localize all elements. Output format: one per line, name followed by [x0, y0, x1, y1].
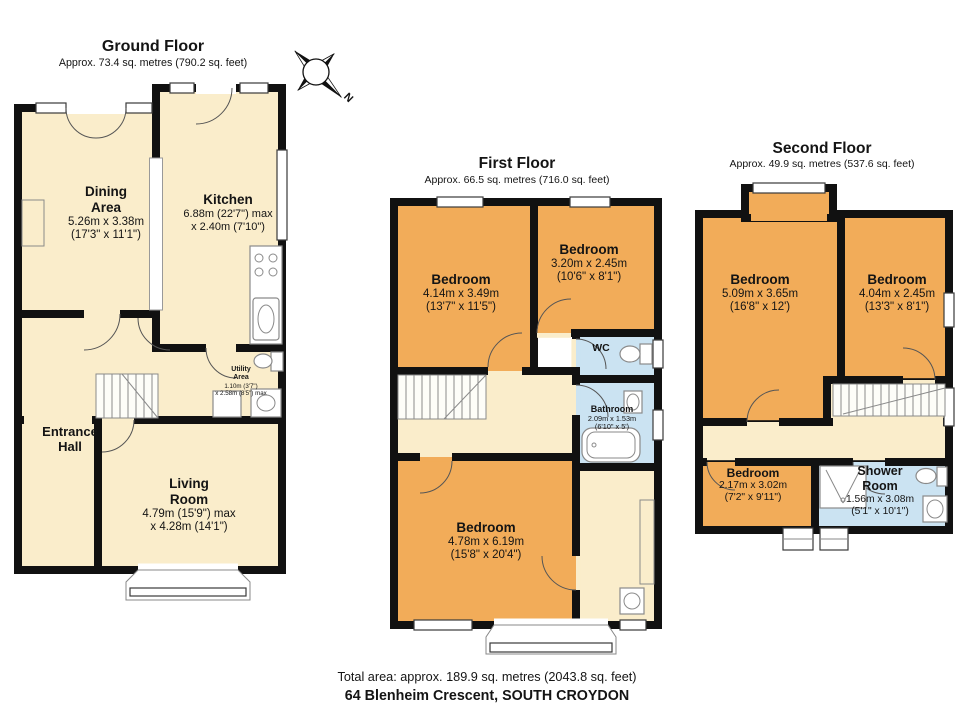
window — [126, 103, 152, 113]
ground-floor-title: Ground Floor — [102, 38, 204, 57]
stairs — [398, 375, 486, 419]
room-label-bedroom-right: Bedroom 4.04m x 2.45m (13'3" x 8'1") — [859, 272, 935, 315]
room-label-bedroom-small-first: Bedroom 3.20m x 2.45m (10'6" x 8'1") — [551, 242, 627, 285]
bay-window — [486, 625, 616, 654]
toilet-icon — [620, 344, 652, 364]
sink-icon — [923, 496, 947, 522]
window — [170, 83, 194, 93]
room-label-shower-room: Shower Room 1.56m x 3.08m (5'1" x 10'1") — [846, 464, 914, 518]
total-area-text: Total area: approx. 189.9 sq. metres (20… — [337, 670, 636, 685]
stairs — [96, 374, 158, 418]
kitchen-counter — [250, 246, 282, 344]
window — [753, 183, 825, 193]
window — [944, 293, 954, 327]
sink-icon — [620, 588, 644, 614]
bath-icon — [582, 428, 640, 462]
window — [570, 197, 610, 207]
window — [620, 620, 646, 630]
window — [36, 103, 66, 113]
window — [437, 197, 483, 207]
second-floor-title: Second Floor — [772, 140, 871, 158]
window — [653, 410, 663, 440]
window — [653, 340, 663, 368]
floorplan-page: N Ground Floor Approx. 73.4 sq. metres (… — [0, 0, 980, 712]
window — [277, 150, 287, 240]
room-label-bedroom-front: Bedroom 4.14m x 3.49m (13'7" x 11'5") — [423, 272, 499, 315]
second-floor-subtitle: Approx. 49.9 sq. metres (537.6 sq. feet) — [729, 158, 914, 170]
room-label-dining: Dining Area 5.26m x 3.38m (17'3" x 11'1"… — [68, 184, 144, 243]
ground-floor-subtitle: Approx. 73.4 sq. metres (790.2 sq. feet) — [59, 57, 247, 70]
room-label-living: Living Room 4.79m (15'9") max x 4.28m (1… — [142, 476, 235, 535]
room-label-bedroom-left: Bedroom 5.09m x 3.65m (16'8" x 12') — [722, 272, 798, 315]
address-text: 64 Blenheim Crescent, SOUTH CROYDON — [345, 688, 629, 705]
chimney-recess — [150, 158, 163, 310]
room-label-utility: Utility Area 1.10m (3'7") x 2.58m (8'5")… — [215, 366, 267, 397]
window — [240, 83, 268, 93]
room-label-entrance-hall: Entrance Hall — [42, 424, 98, 455]
floorplan-drawing: N — [0, 0, 980, 712]
window — [414, 620, 472, 630]
north-label: N — [341, 91, 355, 105]
room-label-kitchen: Kitchen 6.88m (22'7") max x 2.40m (7'10"… — [183, 192, 272, 234]
stairs — [833, 384, 945, 416]
room-label-wc: WC — [592, 342, 610, 354]
first-floor-title: First Floor — [479, 155, 556, 173]
first-floor-subtitle: Approx. 66.5 sq. metres (716.0 sq. feet) — [424, 174, 609, 186]
room-label-bedroom-rear: Bedroom 4.78m x 6.19m (15'8" x 20'4") — [448, 520, 524, 563]
room-label-bedroom-small-second: Bedroom 2.17m x 3.02m (7'2" x 9'11") — [719, 466, 787, 504]
corridor — [576, 467, 658, 625]
compass-icon: N — [276, 32, 359, 115]
room-label-bathroom: Bathroom 2.09m x 1.53m (6'10" x 5') — [588, 404, 636, 432]
bay-window — [126, 570, 250, 600]
